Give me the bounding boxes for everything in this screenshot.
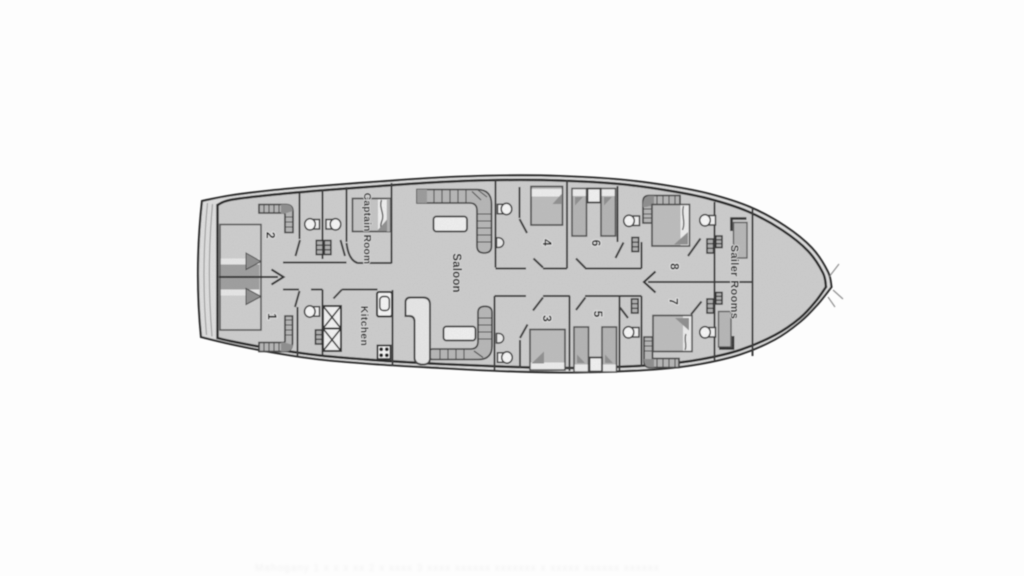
- svg-text:Mahogany 1 x x x xx 2 x: Mahogany 1 x x x xx 2 x xxxx 3 xxxx xxxx…: [255, 563, 660, 574]
